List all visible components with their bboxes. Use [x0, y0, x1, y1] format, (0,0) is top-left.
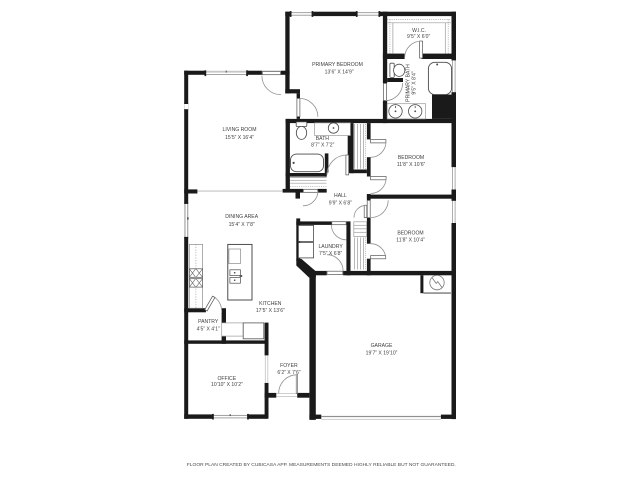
svg-text:11’8” X 10’4”: 11’8” X 10’4”	[396, 238, 425, 244]
svg-text:9’5” X 6’0”: 9’5” X 6’0”	[407, 34, 431, 40]
svg-text:17’5” X 13’6”: 17’5” X 13’6”	[256, 308, 285, 314]
svg-text:15’4” X 7’8”: 15’4” X 7’8”	[229, 222, 255, 228]
svg-text:15’5” X 16’4”: 15’5” X 16’4”	[225, 135, 254, 141]
svg-text:PANTRY: PANTRY	[198, 319, 219, 325]
svg-text:HALL: HALL	[334, 193, 347, 199]
svg-text:LIVING ROOM: LIVING ROOM	[223, 127, 257, 133]
svg-text:19’7” X 19’10”: 19’7” X 19’10”	[366, 350, 398, 356]
svg-text:FOYER: FOYER	[280, 363, 298, 369]
svg-text:13’6” X 14’9”: 13’6” X 14’9”	[325, 69, 354, 75]
svg-text:7’5” X 6’8”: 7’5” X 6’8”	[319, 251, 343, 257]
svg-text:9’9” X 6’8”: 9’9” X 6’8”	[329, 201, 353, 207]
svg-text:9’5” X 8’4”: 9’5” X 8’4”	[411, 71, 417, 95]
svg-text:BEDROOM: BEDROOM	[397, 231, 423, 237]
svg-text:4’5” X 4’1”: 4’5” X 4’1”	[197, 327, 221, 333]
svg-text:6’2” X 7’6”: 6’2” X 7’6”	[277, 370, 301, 376]
svg-text:OFFICE: OFFICE	[217, 376, 236, 382]
svg-text:PRIMARY BEDROOM: PRIMARY BEDROOM	[312, 62, 363, 68]
svg-text:8’7” X 7’2”: 8’7” X 7’2”	[311, 142, 335, 148]
svg-text:10’10” X 10’2”: 10’10” X 10’2”	[211, 382, 243, 388]
svg-text:KITCHEN: KITCHEN	[259, 301, 282, 307]
svg-text:DINING AREA: DINING AREA	[225, 214, 258, 220]
svg-text:BEDROOM: BEDROOM	[398, 155, 424, 161]
svg-text:11’8” X 10’6”: 11’8” X 10’6”	[397, 162, 426, 168]
svg-text:GARAGE: GARAGE	[371, 343, 393, 349]
svg-text:FLOOR PLAN CREATED BY CUBICASA: FLOOR PLAN CREATED BY CUBICASA APP. MEAS…	[187, 462, 456, 468]
svg-text:LAUNDRY: LAUNDRY	[318, 244, 343, 250]
svg-text:W.I.C.: W.I.C.	[412, 28, 426, 34]
svg-text:BATH: BATH	[316, 136, 330, 142]
